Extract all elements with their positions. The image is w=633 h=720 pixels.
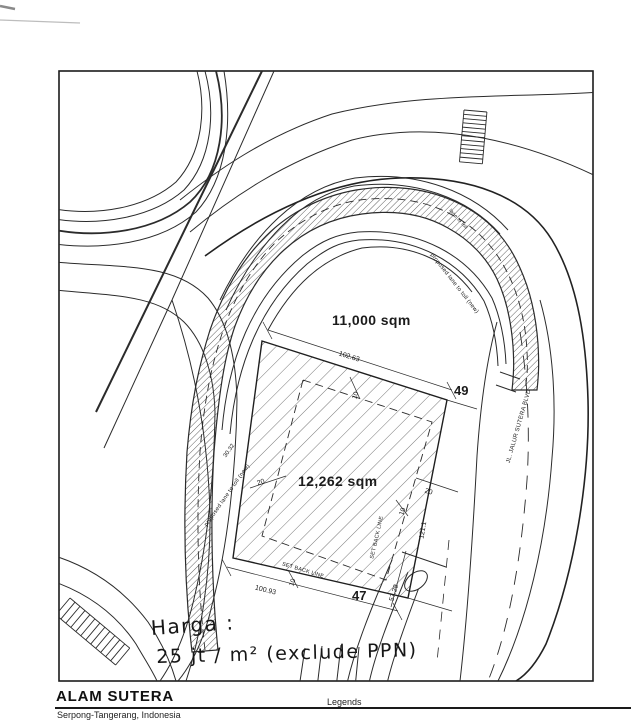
plot-area-upper: 11,000 sqm bbox=[332, 312, 411, 328]
legends-label: Legends bbox=[327, 697, 362, 707]
zebra-crossing-top bbox=[459, 110, 486, 164]
ramp-roads bbox=[96, 71, 274, 681]
project-title: ALAM SUTERA bbox=[56, 688, 174, 705]
project-subtitle: Serpong-Tangerang, Indonesia bbox=[57, 710, 181, 720]
site-plan-page: 11,000 sqm 12,262 sqm 49 47 102.63 100.9… bbox=[0, 0, 633, 720]
loop-road-arcs bbox=[55, 71, 228, 246]
plot-number-49: 49 bbox=[454, 383, 468, 398]
plot-boundary bbox=[233, 341, 447, 598]
footer-divider bbox=[55, 707, 631, 709]
site-plan-drawing bbox=[0, 0, 633, 720]
plot-area-lower: 12,262 sqm bbox=[298, 473, 378, 489]
plot-number-47: 47 bbox=[352, 588, 366, 603]
scan-marks bbox=[0, 6, 80, 23]
zebra-crossing-bottom bbox=[56, 598, 130, 665]
